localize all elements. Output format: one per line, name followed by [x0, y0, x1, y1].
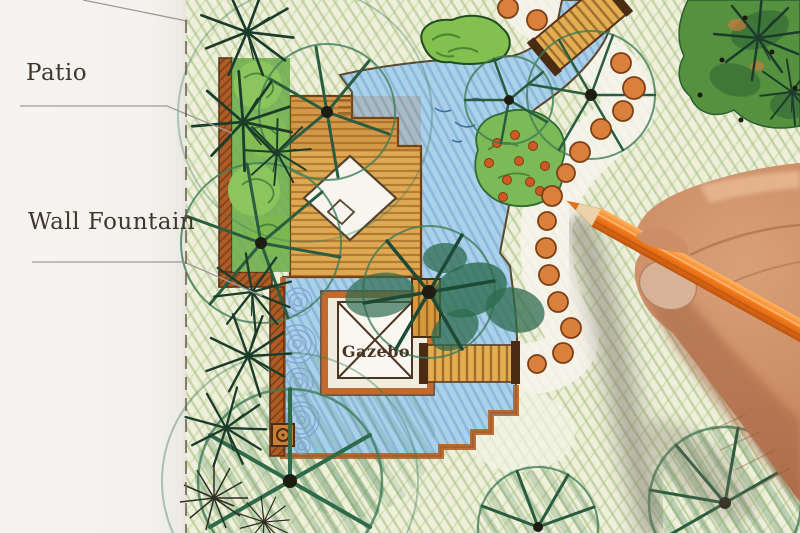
- photo-of-landscape-plan: Patio Wall Fountain Gazebo: [0, 0, 800, 533]
- patio-label: Patio: [26, 60, 87, 86]
- wall-fountain-label: Wall Fountain: [28, 209, 195, 235]
- boardwalk: [419, 341, 520, 384]
- gazebo-label: Gazebo: [336, 342, 416, 361]
- plan-drawing: [0, 0, 800, 533]
